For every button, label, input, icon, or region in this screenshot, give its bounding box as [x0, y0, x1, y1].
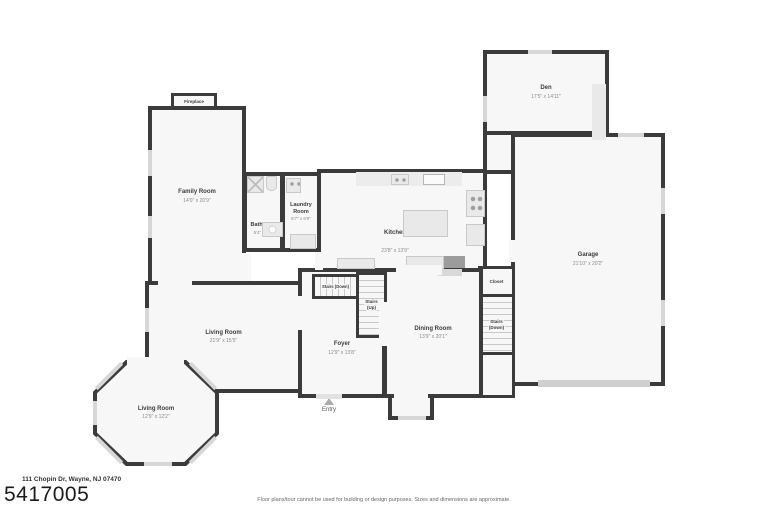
garage-label: Garage	[578, 252, 599, 260]
garage-door	[538, 380, 650, 387]
bay-window-icon	[93, 401, 97, 425]
stairs-garage-sub: (Down)	[488, 325, 505, 331]
washer-icon	[290, 234, 316, 249]
stairs-foyer-label: Stairs (Down)	[321, 284, 350, 289]
window-icon	[528, 50, 552, 54]
kitchen-island	[403, 210, 448, 237]
stove-icon	[391, 174, 409, 185]
stairs-down-garage: Stairs (Down)	[478, 294, 515, 355]
stairs-up-sub: (Up)	[366, 305, 377, 311]
opening-foyer-dining	[379, 302, 389, 346]
foyer-dims: 12'9" x 13'8"	[328, 350, 355, 357]
stairs-down-foyer: Stairs (Down)	[312, 274, 359, 299]
opening-family-living	[158, 279, 192, 290]
dining-dims: 13'9" x 20'1"	[419, 334, 446, 341]
room-family-room: Family Room 14'0" x 20'9"	[148, 106, 246, 287]
hall-garage-entry	[478, 352, 515, 398]
den-label: Den	[540, 85, 551, 93]
window-icon	[618, 133, 644, 137]
window-icon	[398, 416, 426, 420]
opening-dining-bay	[394, 393, 428, 401]
opening-kitchen-dining	[396, 265, 442, 275]
window-icon	[148, 216, 152, 238]
window-icon	[148, 150, 152, 176]
opening-living-bay	[127, 357, 184, 366]
living-bay-label: Living Room	[138, 406, 174, 414]
opening-hall-kitchen	[315, 252, 323, 270]
dryer-icon	[286, 178, 301, 193]
room-living-bay: Living Room 12'9" x 12'2"	[93, 360, 219, 466]
garage-dims: 21'10" x 20'2"	[573, 261, 603, 268]
bay-window-icon	[144, 462, 172, 466]
family-room-dims: 14'0" x 20'9"	[183, 198, 210, 205]
kitchen-dims: 23'8" x 13'9"	[381, 248, 408, 254]
entry-label: Entry	[304, 407, 354, 413]
fridge-icon	[466, 224, 485, 246]
living-label: Living Room	[205, 330, 241, 338]
opening-family-hall	[241, 253, 251, 281]
laundry-dims: 6'7" x 6'9"	[291, 216, 311, 222]
listing-number: 5417005	[4, 483, 89, 507]
entry-arrow-icon	[324, 398, 334, 405]
kitchen-sink-icon	[423, 174, 445, 185]
property-address: 111 Chopin Dr, Wayne, NJ 07470	[22, 476, 121, 483]
room-closet: Closet	[478, 266, 515, 297]
kitchen-counter	[356, 172, 462, 186]
opening-garage-door-interior	[509, 240, 519, 262]
dining-label: Dining Room	[414, 326, 451, 334]
family-room-label: Family Room	[178, 189, 216, 197]
window-icon	[661, 300, 665, 326]
window-icon	[661, 188, 665, 214]
room-garage: Garage 21'10" x 20'2"	[511, 133, 665, 386]
closet-label: Closet	[490, 279, 504, 285]
disclaimer-text: Floor plans/tour cannot be used for buil…	[0, 497, 768, 503]
toilet-icon	[266, 176, 277, 191]
living-dims: 21'9" x 15'5"	[210, 338, 237, 345]
entry-door	[316, 394, 342, 399]
kitchen-counter	[337, 258, 375, 269]
foyer-label: Foyer	[334, 341, 350, 349]
cooktop-icon	[466, 190, 485, 217]
kitchen-appliance	[444, 256, 465, 268]
living-bay-dims: 12'9" x 12'2"	[142, 414, 169, 421]
floor-plan: Fireplace Family Room 14'0" x 20'9" Bath…	[0, 0, 768, 512]
bay-interior: Living Room 12'9" x 12'2"	[97, 364, 215, 462]
fireplace-label: Fireplace	[184, 99, 204, 105]
shower-icon	[247, 176, 264, 193]
den-dims: 17'5" x 14'11"	[531, 94, 561, 101]
room-dining: Dining Room 13'9" x 20'1"	[383, 268, 483, 398]
bathroom-sink-icon	[262, 222, 283, 237]
window-icon	[145, 308, 149, 332]
laundry-label: Laundry Room	[289, 202, 313, 216]
opening-living-foyer	[296, 296, 306, 330]
window-icon	[483, 96, 487, 122]
den-closet	[592, 84, 606, 140]
room-den: Den 17'5" x 14'11"	[483, 50, 609, 135]
